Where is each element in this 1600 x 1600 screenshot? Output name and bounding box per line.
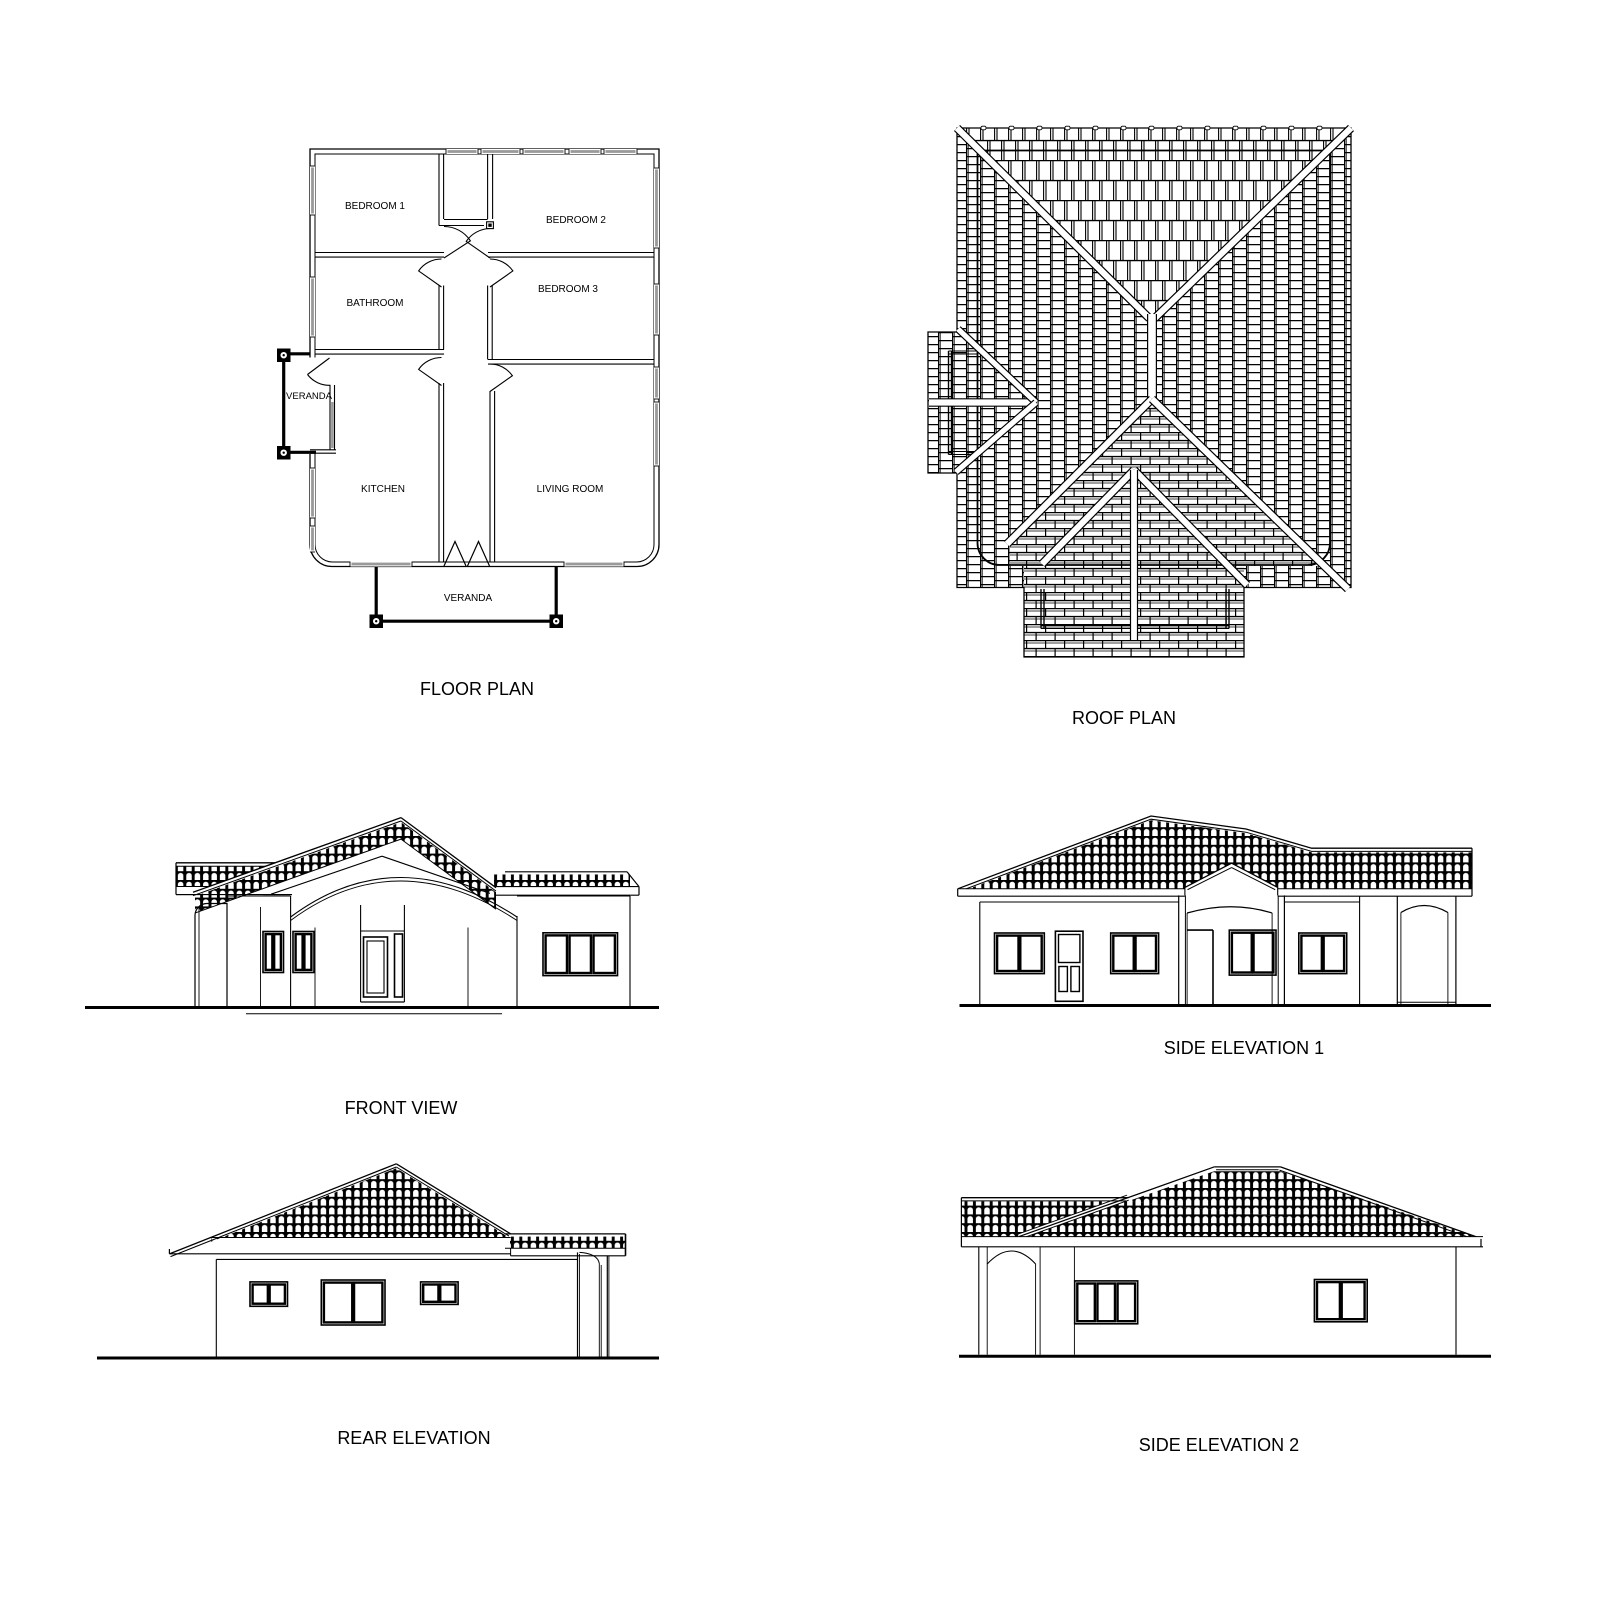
svg-text:REAR ELEVATION: REAR ELEVATION (337, 1428, 490, 1448)
svg-text:SIDE ELEVATION 1: SIDE ELEVATION 1 (1164, 1038, 1324, 1058)
svg-text:LIVING ROOM: LIVING ROOM (537, 484, 604, 495)
svg-text:FLOOR PLAN: FLOOR PLAN (420, 679, 534, 699)
svg-text:FRONT VIEW: FRONT VIEW (345, 1098, 458, 1118)
svg-text:BEDROOM 3: BEDROOM 3 (538, 284, 598, 295)
svg-text:BEDROOM 2: BEDROOM 2 (546, 215, 606, 226)
svg-text:BATHROOM: BATHROOM (346, 298, 403, 309)
svg-text:KITCHEN: KITCHEN (361, 484, 405, 495)
svg-text:SIDE ELEVATION 2: SIDE ELEVATION 2 (1139, 1435, 1299, 1455)
svg-text:BEDROOM 1: BEDROOM 1 (345, 201, 405, 212)
svg-text:ROOF PLAN: ROOF PLAN (1072, 708, 1176, 728)
svg-text:VERANDA: VERANDA (444, 593, 493, 604)
svg-text:VERANDA: VERANDA (286, 391, 333, 402)
